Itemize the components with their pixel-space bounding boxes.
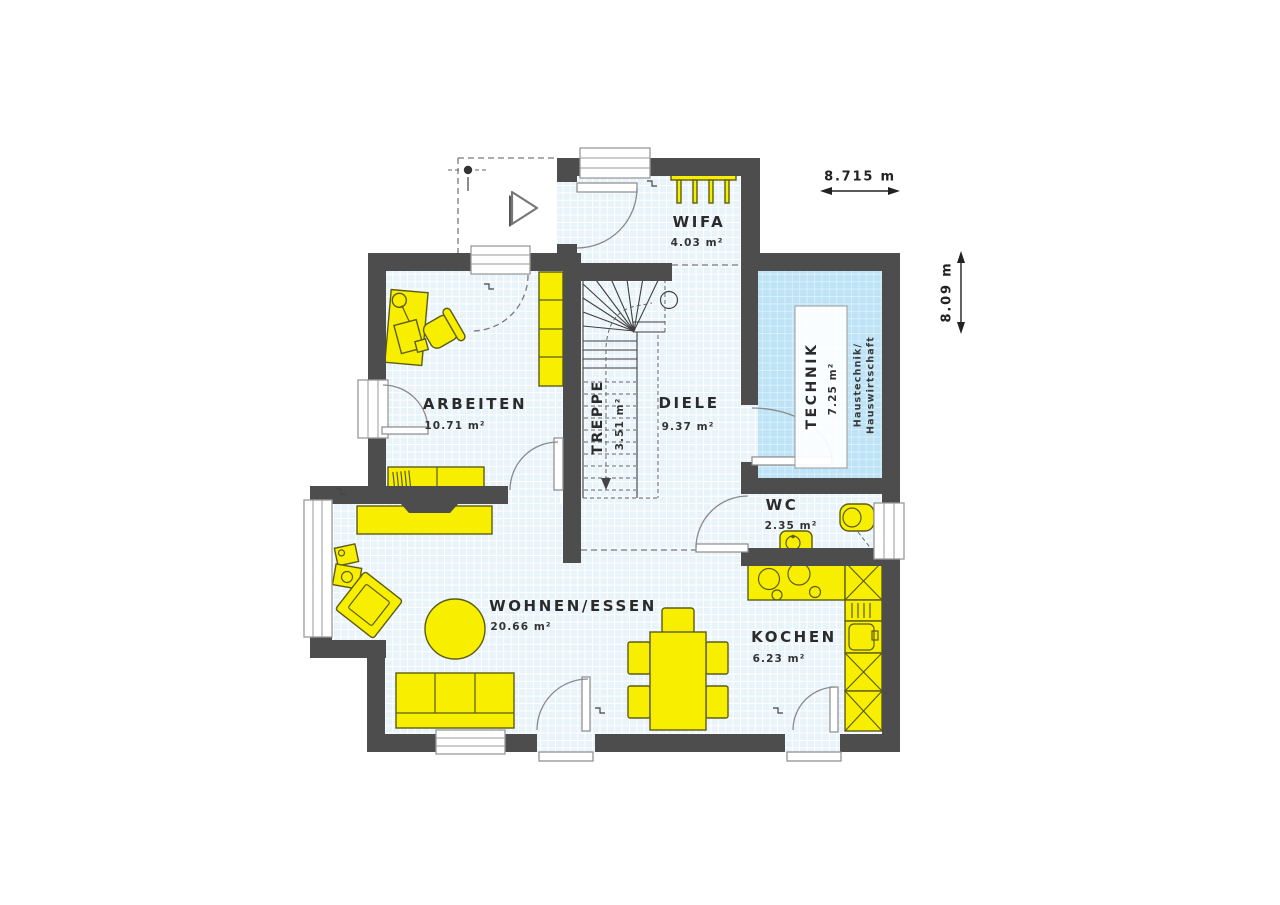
room-label-diele: DIELE (658, 394, 719, 412)
room-area-diele: 9.37 m² (662, 421, 715, 433)
room-label-treppe: TREPPE (590, 379, 606, 455)
room-area-arbeiten: 10.71 m² (424, 420, 485, 432)
room-label-wifa: WIFA (673, 213, 726, 231)
room-area-wohnen: 20.66 m² (490, 621, 551, 633)
room-label-arbeiten: ARBEITEN (423, 395, 527, 413)
window-wohnen-south (436, 730, 505, 754)
room-area-wifa: 4.03 m² (671, 237, 724, 249)
kitchen-counter (748, 562, 845, 600)
entrance-arrow-icon (512, 192, 537, 224)
room-label-wc: WC (766, 496, 799, 514)
technik-note-line2: Hauswirtschaft (866, 336, 877, 434)
sofa (396, 673, 514, 728)
tv-icon (401, 504, 458, 513)
room-label-wohnen: WOHNEN/ESSEN (489, 597, 657, 615)
window-wohnen-west (304, 500, 332, 637)
room-label-kochen: KOCHEN (751, 628, 837, 646)
toilet (840, 504, 874, 531)
entrance-porch (448, 158, 557, 253)
technik-label-box (795, 306, 847, 468)
dimension-height-label: 8.09 m (940, 262, 955, 323)
room-area-technik: 7.25 m² (827, 363, 839, 416)
reference-point-icon (464, 166, 472, 174)
room-area-kochen: 6.23 m² (753, 653, 806, 665)
technik-note-line1: Haustechnik/ (853, 343, 864, 427)
floorplan-page: WIFA 4.03 m² ARBEITEN 10.71 m² TREPPE 3.… (0, 0, 1280, 905)
room-area-wc: 2.35 m² (765, 520, 818, 532)
room-label-technik: TECHNIK (804, 342, 820, 429)
room-area-treppe: 3.51 m² (614, 398, 626, 451)
dining-table (650, 632, 706, 730)
dimension-width-label: 8.715 m (824, 170, 896, 185)
floor-plan-drawing (0, 0, 1280, 905)
window-wifa-north (580, 148, 650, 178)
coffee-table (425, 599, 485, 659)
window-wc-east (874, 503, 904, 559)
